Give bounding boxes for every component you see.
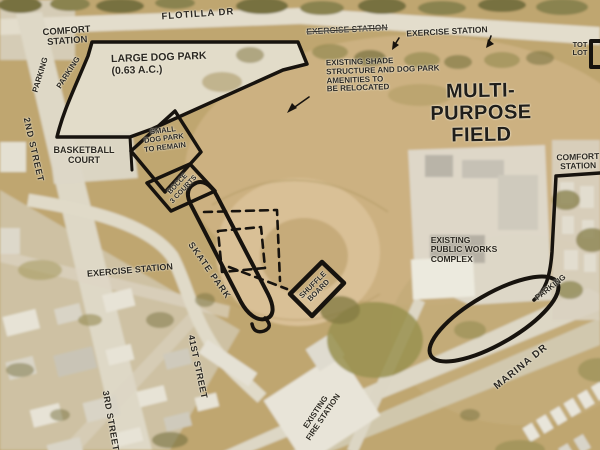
label-comfort-station-e: COMFORT STATION	[556, 152, 600, 172]
label-comfort-station-nw: COMFORT STATION	[42, 25, 91, 49]
label-small-dog-park: SMALL DOG PARK TO REMAIN	[142, 124, 187, 154]
label-public-works-complex: EXISTING PUBLIC WORKS COMPLEX	[431, 236, 498, 264]
label-tot-lot: TOT LOT	[573, 41, 588, 58]
public-works-buildings	[408, 145, 552, 305]
label-multi-purpose-field: MULTI-PURPOSE FIELD	[421, 79, 541, 147]
label-basketball-court: BASKETBALL COURT	[54, 146, 115, 166]
label-large-dog-park: LARGE DOG PARK (0.63 A.C.)	[111, 51, 207, 77]
aerial-site-plan-map: FLOTILLA DR COMFORT STATION PARKING PARK…	[0, 0, 600, 450]
